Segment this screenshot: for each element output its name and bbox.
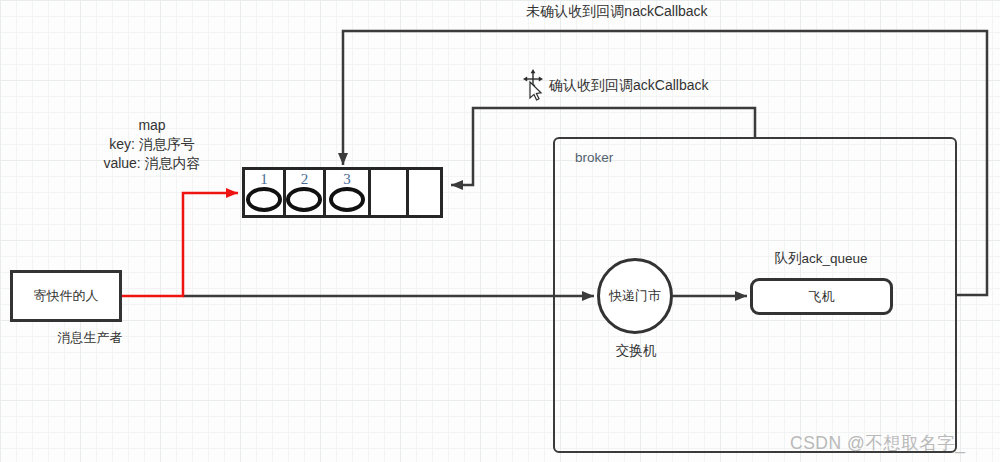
move-cursor-icon — [521, 69, 547, 105]
producer-box-label: 寄快件的人 — [34, 287, 99, 305]
producer-box[interactable]: 寄快件的人 — [10, 270, 122, 322]
map-value-line: value: 消息内容 — [52, 154, 252, 173]
queue-cell[interactable]: 2 — [286, 170, 325, 215]
exchange-caption[interactable]: 交换机 — [586, 342, 686, 360]
queue-cell-number: 3 — [343, 171, 351, 187]
map-key-line: key: 消息序号 — [52, 135, 252, 154]
producer-caption[interactable]: 消息生产者 — [30, 329, 150, 347]
ack-callback-label[interactable]: 确认收到回调ackCallback — [549, 77, 708, 95]
queue-cell-empty[interactable] — [409, 170, 440, 215]
message-oval-icon — [286, 187, 322, 212]
ack-queue-caption[interactable]: 队列ack_queue — [741, 250, 901, 268]
queue-cell-number: 1 — [260, 171, 268, 187]
map-title: map — [52, 116, 252, 135]
nack-callback-label[interactable]: 未确认收到回调nackCallback — [467, 3, 767, 21]
watermark: CSDN @不想取名字_ — [790, 431, 965, 455]
producer-to-map-connector-red[interactable] — [122, 193, 238, 296]
message-queue[interactable]: 1 2 3 — [242, 167, 443, 218]
message-oval-icon — [329, 187, 365, 212]
map-annotation[interactable]: map key: 消息序号 value: 消息内容 — [52, 116, 252, 173]
queue-cell-empty[interactable] — [371, 170, 409, 215]
queue-cell[interactable]: 3 — [326, 170, 372, 215]
queue-cell[interactable]: 1 — [245, 170, 286, 215]
diagram-canvas: 未确认收到回调nackCallback 确认收到回调ackCallback ma… — [0, 0, 1000, 462]
ack-queue-box[interactable]: 飞机 — [750, 278, 893, 315]
exchange-circle[interactable]: 快递门市 — [597, 258, 673, 334]
broker-title: broker — [575, 150, 613, 165]
message-oval-icon — [246, 187, 282, 212]
ack-queue-box-label: 飞机 — [809, 288, 835, 306]
queue-cell-number: 2 — [301, 171, 309, 187]
exchange-circle-label: 快递门市 — [609, 287, 661, 305]
